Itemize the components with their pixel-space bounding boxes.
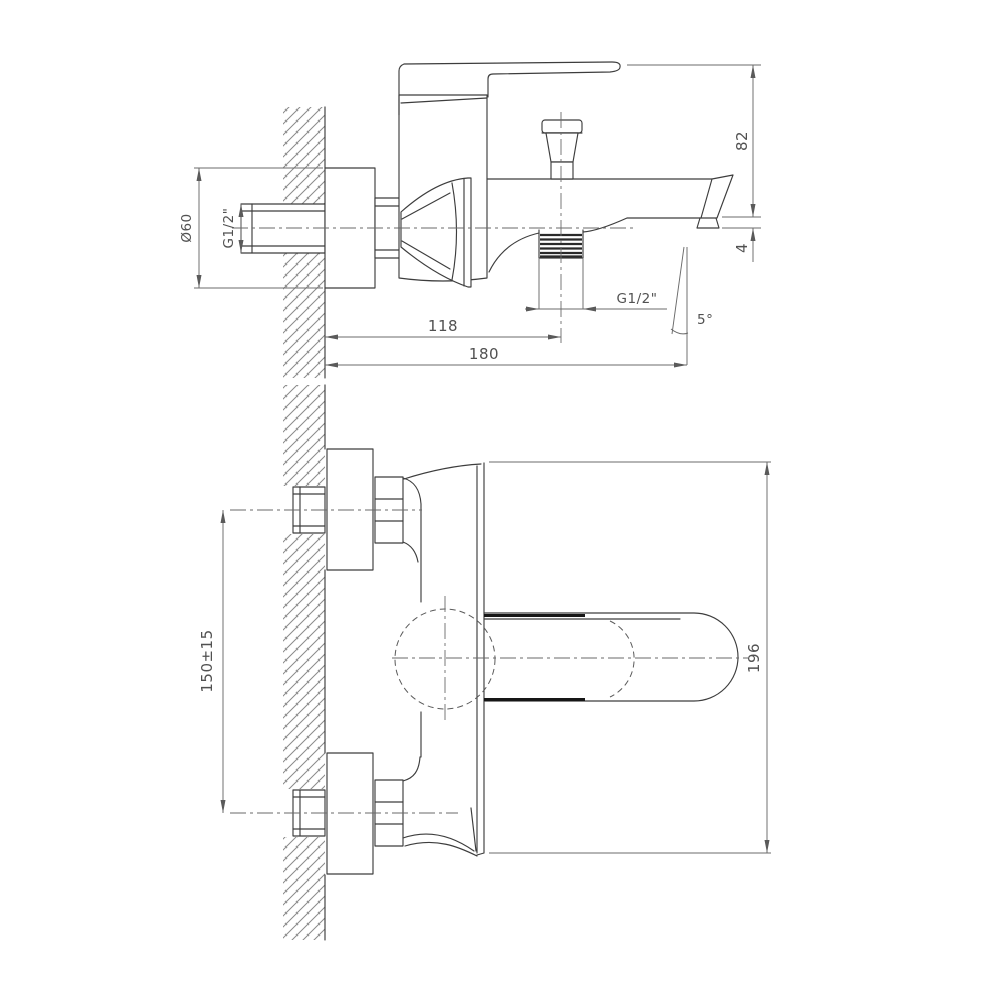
side-view: Ø60 G1/2" 82 4 118 180 G1/2" 5° bbox=[179, 62, 761, 378]
handle-front bbox=[484, 613, 738, 701]
tub-spout bbox=[487, 175, 733, 272]
dimension-118-label: 118 bbox=[428, 317, 458, 335]
escutcheon-top bbox=[327, 449, 373, 570]
dimension-inlet-thread-label: G1/2" bbox=[221, 208, 237, 249]
wall-section-front bbox=[283, 385, 325, 940]
dimension-angle-label: 5° bbox=[697, 312, 713, 328]
dimension-diameter-label: Ø60 bbox=[179, 213, 195, 242]
dimension-180-label: 180 bbox=[469, 345, 499, 363]
faucet-technical-drawing: Ø60 G1/2" 82 4 118 180 G1/2" 5° bbox=[0, 0, 1000, 1000]
inlet-pipe bbox=[241, 204, 325, 253]
escutcheon-bottom bbox=[327, 753, 373, 874]
dimension-overall-height-label: 196 bbox=[745, 643, 763, 673]
dimension-outlet-thread-label: G1/2" bbox=[617, 291, 658, 307]
technical-drawing-page: Ø60 G1/2" 82 4 118 180 G1/2" 5° bbox=[0, 0, 1000, 1000]
spout-tip bbox=[701, 175, 733, 218]
dimension-height-label: 82 bbox=[733, 131, 751, 151]
body-profile bbox=[403, 463, 484, 856]
diverter-knob bbox=[542, 120, 582, 179]
dimension-inlet-spacing-label: 150±15 bbox=[198, 629, 216, 692]
dimension-tip-drop-label: 4 bbox=[733, 243, 751, 253]
front-view: 150±15 196 bbox=[198, 385, 771, 940]
